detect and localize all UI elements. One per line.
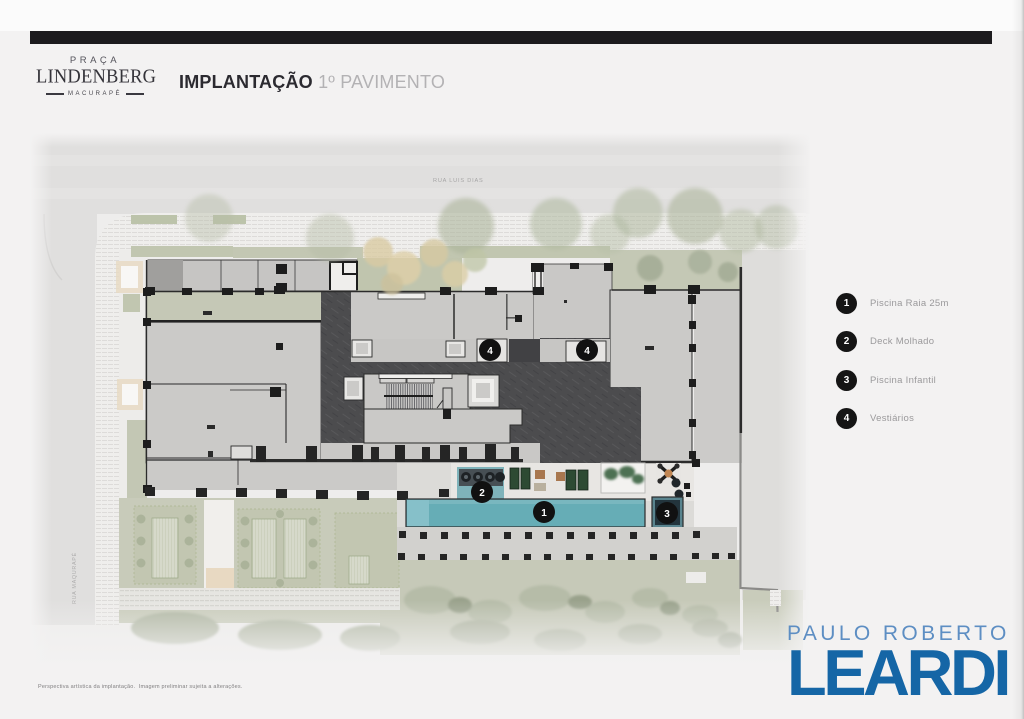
svg-text:4: 4 [487, 346, 493, 357]
svg-text:1: 1 [541, 508, 547, 519]
svg-text:2: 2 [479, 488, 485, 499]
svg-text:4: 4 [584, 346, 590, 357]
svg-text:RUA LUIS DIAS: RUA LUIS DIAS [433, 178, 484, 184]
svg-text:3: 3 [664, 509, 670, 520]
svg-text:RUA MAQURAPÉ: RUA MAQURAPÉ [71, 552, 78, 604]
